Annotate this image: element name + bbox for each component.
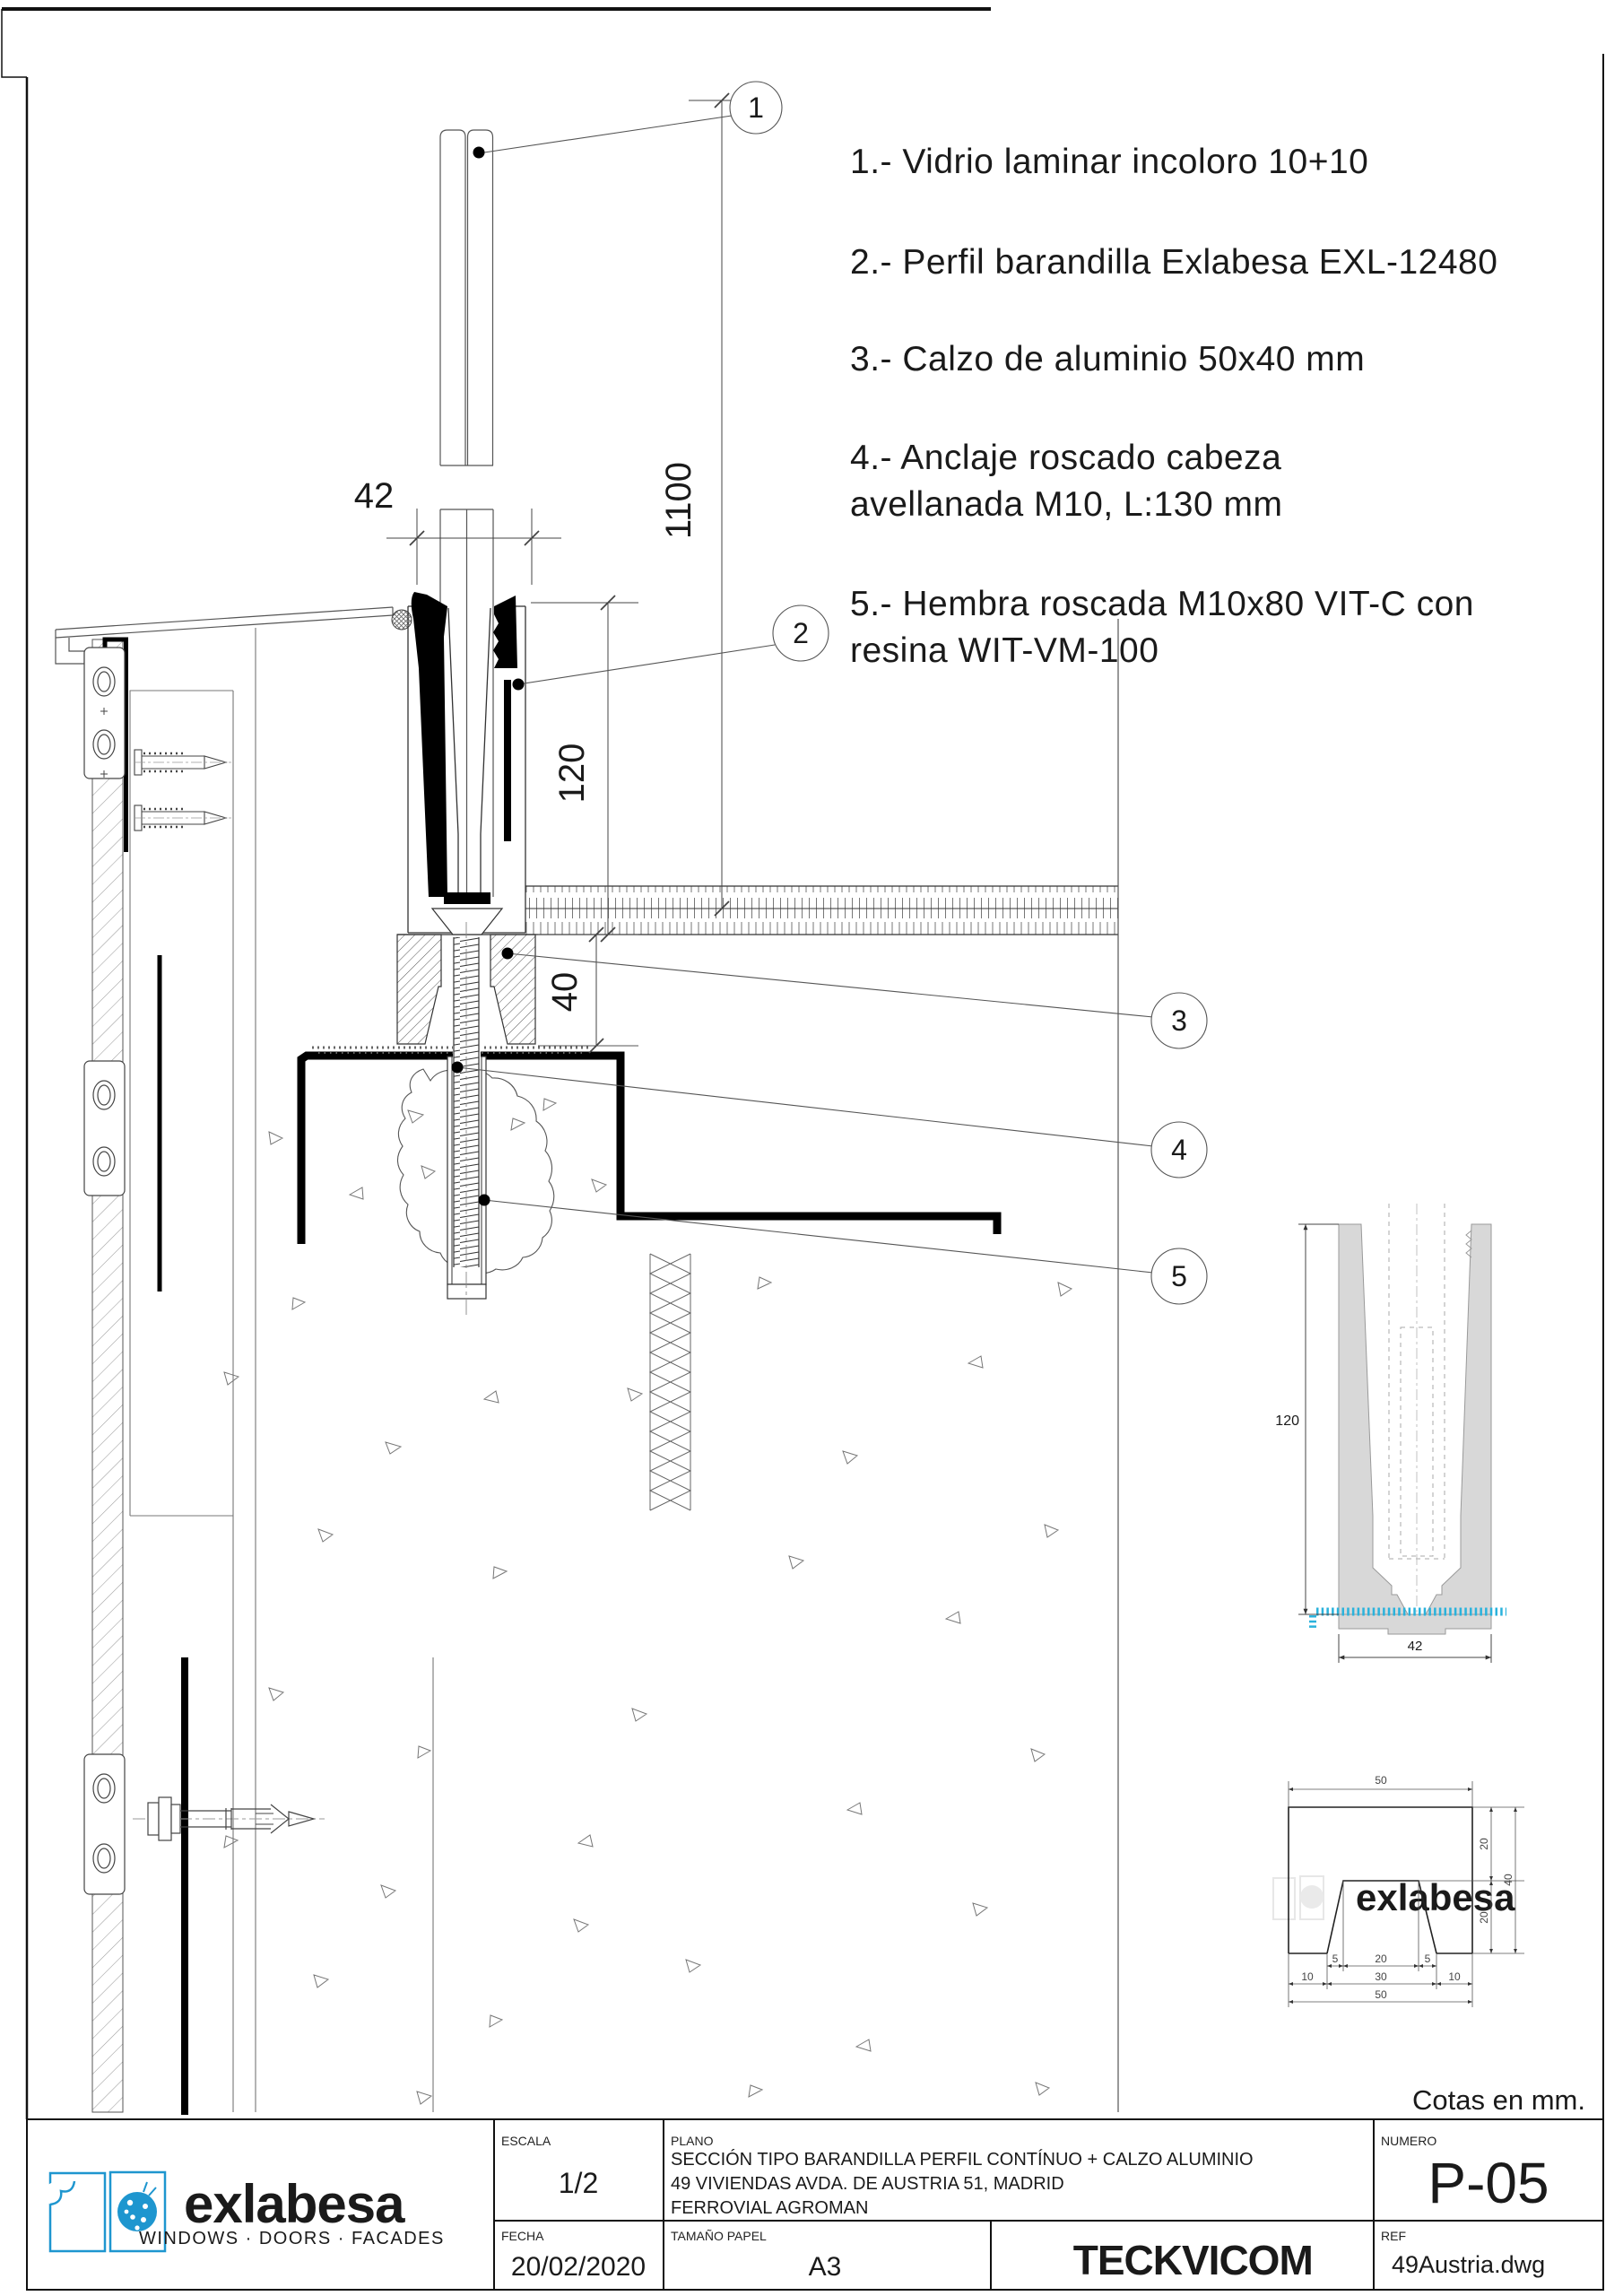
callout-2: 2 <box>513 605 829 691</box>
ref-value: 49Austria.dwg <box>1392 2251 1545 2278</box>
numero-label: NUMERO <box>1381 2134 1436 2148</box>
facade-wall-assembly <box>56 607 433 2115</box>
brand-tagline: WINDOWS · DOORS · FACADES <box>139 2229 445 2248</box>
callout-5: 5 <box>479 1195 1208 1305</box>
glass-panel <box>440 130 493 897</box>
ladybug-icon <box>117 2192 157 2231</box>
escala-label: ESCALA <box>501 2134 551 2148</box>
note-4-line2: avellanada M10, L:130 mm <box>850 485 1282 524</box>
wall-screws <box>135 750 231 831</box>
calzo-left <box>397 935 441 1044</box>
countersunk-head <box>432 909 502 935</box>
calzo-notch-left-label: 5 <box>1332 1952 1339 1965</box>
sleeve-cap <box>447 1284 486 1299</box>
plano-label: PLANO <box>671 2134 714 2148</box>
calzo-top-width-label: 50 <box>1375 1774 1387 1787</box>
teckvicom-teck: TECK <box>1073 2237 1183 2283</box>
dim-glass-width: 42 <box>354 476 561 585</box>
callout-5-dot <box>479 1195 490 1206</box>
calzo-base-right-label: 10 <box>1448 1970 1461 1983</box>
tile-finish <box>397 886 1118 935</box>
note-2: 2.- Perfil barandilla Exlabesa EXL-12480 <box>850 243 1497 282</box>
calzo-notch-right-label: 5 <box>1425 1952 1431 1965</box>
dim-profile-height-label: 120 <box>552 744 592 804</box>
dim-calzo-height: 40 <box>545 927 603 1053</box>
plano-line1: SECCIÓN TIPO BARANDILLA PERFIL CONTÍNUO … <box>671 2149 1254 2170</box>
calzo-side-lower-label: 20 <box>1478 1911 1490 1924</box>
balcony-slab <box>224 619 1118 2112</box>
fecha-label: FECHA <box>501 2229 544 2243</box>
fixing-plate-2 <box>84 1061 125 1196</box>
calzo-base-left-label: 10 <box>1301 1970 1314 1983</box>
gasket-left <box>412 592 447 897</box>
sheet-frame <box>2 9 1603 2119</box>
profile-detail-height-label: 120 <box>1275 1413 1299 1429</box>
callout-4: 4 <box>452 1062 1208 1178</box>
window-frame-lines <box>130 628 433 2112</box>
callout-3-dot <box>502 948 514 960</box>
dim-railing-height-label: 1100 <box>659 462 699 539</box>
callout-3: 3 <box>502 948 1208 1049</box>
title-block: exlabesa WINDOWS · DOORS · FACADES ESCAL… <box>27 2119 1603 2290</box>
fixing-plate-1 <box>84 648 125 778</box>
concrete-aggregate <box>224 1099 1072 2104</box>
dim-calzo-height-label: 40 <box>545 972 585 1013</box>
screw-1 <box>135 750 231 775</box>
profile-detail: 120 42 <box>1275 1204 1506 1663</box>
expansion-bolt <box>133 1797 325 1840</box>
profile-bottom-seal <box>444 892 490 904</box>
note-5-line2: resina WIT-VM-100 <box>850 631 1159 670</box>
calzo-side-upper-label: 20 <box>1478 1838 1490 1850</box>
screw-2 <box>135 805 231 831</box>
calzo-right <box>490 935 535 1044</box>
note-4-line1: 4.- Anclaje roscado cabeza <box>850 439 1281 477</box>
calzo-bottom-width-label: 50 <box>1375 1988 1387 2001</box>
calzo-blocks <box>397 935 638 1046</box>
cad-canvas: 42 1100 120 40 1 <box>0 0 1623 2296</box>
plano-line2: 49 VIVIENDAS AVDA. DE AUSTRIA 51, MADRID <box>671 2174 1064 2194</box>
gasket-right-strip <box>504 680 511 841</box>
note-3: 3.- Calzo de aluminio 50x40 mm <box>850 340 1365 378</box>
notes-list: 1.- Vidrio laminar incoloro 10+10 2.- Pe… <box>850 143 1497 670</box>
note-5-line1: 5.- Hembra roscada M10x80 VIT-C con <box>850 585 1474 623</box>
callout-1: 1 <box>473 82 783 159</box>
dim-glass-width-label: 42 <box>354 476 395 516</box>
ref-label: REF <box>1381 2229 1406 2243</box>
callout-5-number: 5 <box>1171 1260 1187 1292</box>
waterproofing-membrane <box>301 1056 997 1244</box>
titleblock-fields: ESCALA 1/2 FECHA 20/02/2020 PLANO SECCIÓ… <box>501 2134 1549 2283</box>
callout-1-dot <box>473 147 485 159</box>
insulation-zigzag <box>650 1254 690 1510</box>
profile-detail-left-wall <box>1339 1224 1408 1614</box>
units-note: Cotas en mm. <box>1412 2084 1585 2116</box>
exlabesa-logo: exlabesa WINDOWS · DOORS · FACADES <box>44 2172 445 2251</box>
callout-4-number: 4 <box>1171 1134 1187 1166</box>
drawing-sheet: 42 1100 120 40 1 <box>0 0 1623 2296</box>
dim-railing-height: 1100 <box>659 93 760 916</box>
calzo-detail: exlabesa 50 20 20 40 5 <box>1273 1774 1524 2007</box>
profile-detail-width-label: 42 <box>1408 1639 1423 1654</box>
callout-3-number: 3 <box>1171 1004 1187 1037</box>
plano-line3: FERROVIAL AGROMAN <box>671 2198 868 2218</box>
sealant-gasket-blob <box>392 610 412 630</box>
note-1: 1.- Vidrio laminar incoloro 10+10 <box>850 143 1368 181</box>
numero-value: P-05 <box>1428 2151 1549 2215</box>
calzo-notch-top-label: 20 <box>1375 1952 1387 1965</box>
profile-detail-base <box>1339 1614 1491 1634</box>
escala-value: 1/2 <box>559 2167 598 2199</box>
calzo-base-middle-label: 30 <box>1375 1970 1387 1983</box>
fecha-value: 20/02/2020 <box>511 2252 646 2282</box>
callout-4-dot <box>452 1062 464 1074</box>
teckvicom-logo: TECK VICOM <box>1073 2237 1313 2283</box>
brand-name: exlabesa <box>184 2174 405 2234</box>
callout-2-dot <box>513 679 525 691</box>
tamano-label: TAMAÑO PAPEL <box>671 2229 767 2243</box>
tamano-value: A3 <box>809 2252 842 2282</box>
callout-2-number: 2 <box>793 617 809 649</box>
profile-detail-right-wall <box>1426 1224 1491 1614</box>
teckvicom-vicom: VICOM <box>1182 2237 1313 2283</box>
fixing-plate-3 <box>84 1754 125 1894</box>
calzo-side-total-label: 40 <box>1502 1874 1515 1886</box>
gasket-right-top <box>493 596 517 668</box>
callout-1-number: 1 <box>748 91 764 124</box>
profile-detail-glass-dashed <box>1389 1204 1445 1559</box>
